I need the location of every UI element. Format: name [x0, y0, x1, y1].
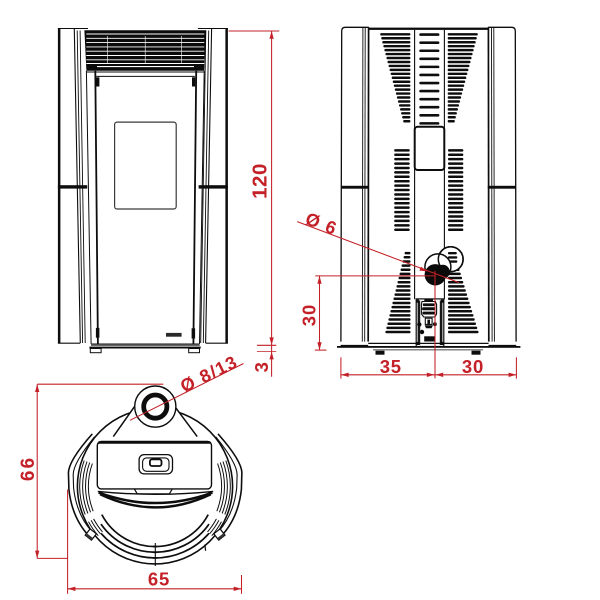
svg-text:30: 30	[462, 356, 484, 377]
svg-text:30: 30	[298, 304, 319, 327]
svg-text:66: 66	[18, 456, 39, 481]
svg-text:120: 120	[248, 163, 271, 199]
svg-text:3: 3	[251, 362, 272, 373]
svg-text:35: 35	[380, 356, 402, 377]
svg-text:65: 65	[148, 568, 170, 589]
